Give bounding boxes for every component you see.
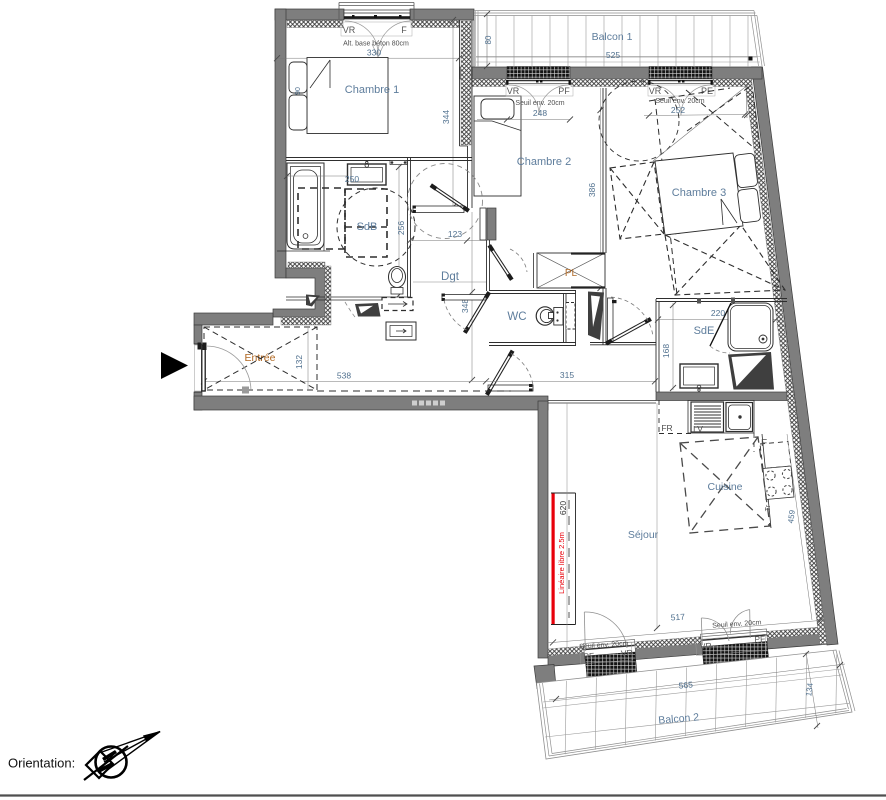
svg-text:PF: PF [558, 86, 570, 96]
svg-text:90: 90 [295, 87, 302, 95]
svg-text:Chambre 1: Chambre 1 [345, 84, 399, 96]
svg-text:525: 525 [606, 50, 620, 60]
svg-text:VR: VR [621, 648, 633, 659]
svg-text:348: 348 [460, 299, 470, 313]
svg-text:315: 315 [560, 370, 574, 380]
svg-text:123: 123 [448, 229, 462, 239]
svg-text:538: 538 [337, 371, 351, 381]
svg-text:Seuil env. 20cm: Seuil env. 20cm [515, 100, 564, 107]
svg-text:F: F [401, 25, 407, 35]
svg-text:VR: VR [507, 86, 520, 96]
svg-text:VR: VR [700, 641, 712, 652]
svg-text:220: 220 [711, 308, 725, 318]
svg-text:LV: LV [693, 424, 703, 434]
svg-text:168: 168 [661, 344, 671, 358]
svg-text:Séjour: Séjour [628, 529, 659, 541]
svg-text:SdE: SdE [694, 325, 715, 337]
svg-text:386: 386 [587, 183, 597, 197]
svg-text:VR: VR [343, 25, 356, 35]
svg-text:250: 250 [345, 174, 359, 184]
svg-text:PF: PF [754, 634, 766, 645]
svg-text:PF: PF [583, 651, 595, 662]
svg-text:459: 459 [786, 509, 797, 524]
svg-text:330: 330 [367, 48, 381, 58]
svg-text:Linéaire libre 2.5m: Linéaire libre 2.5m [557, 532, 566, 594]
svg-text:80: 80 [484, 35, 493, 44]
svg-text:132: 132 [294, 355, 304, 369]
svg-text:134: 134 [804, 682, 815, 697]
svg-text:WC: WC [507, 311, 526, 323]
svg-text:565: 565 [678, 679, 693, 690]
svg-text:Balcon 1: Balcon 1 [592, 31, 633, 43]
svg-text:Chambre 3: Chambre 3 [672, 187, 726, 199]
svg-text:620: 620 [558, 501, 568, 515]
svg-text:344: 344 [441, 110, 451, 124]
svg-text:Alt. base béton 80cm: Alt. base béton 80cm [343, 41, 409, 48]
svg-text:517: 517 [670, 612, 685, 623]
svg-text:Dgt: Dgt [441, 271, 460, 283]
svg-text:SdB: SdB [357, 221, 378, 233]
svg-text:F: F [761, 438, 767, 449]
svg-text:248: 248 [533, 108, 547, 118]
svg-text:PL: PL [565, 268, 578, 279]
svg-text:Cuisine: Cuisine [707, 481, 742, 493]
svg-text:256: 256 [396, 221, 406, 235]
svg-text:FR: FR [661, 423, 672, 433]
svg-text:Chambre 2: Chambre 2 [517, 156, 571, 168]
svg-text:Orientation:: Orientation: [8, 756, 75, 771]
svg-text:VR: VR [649, 86, 662, 96]
